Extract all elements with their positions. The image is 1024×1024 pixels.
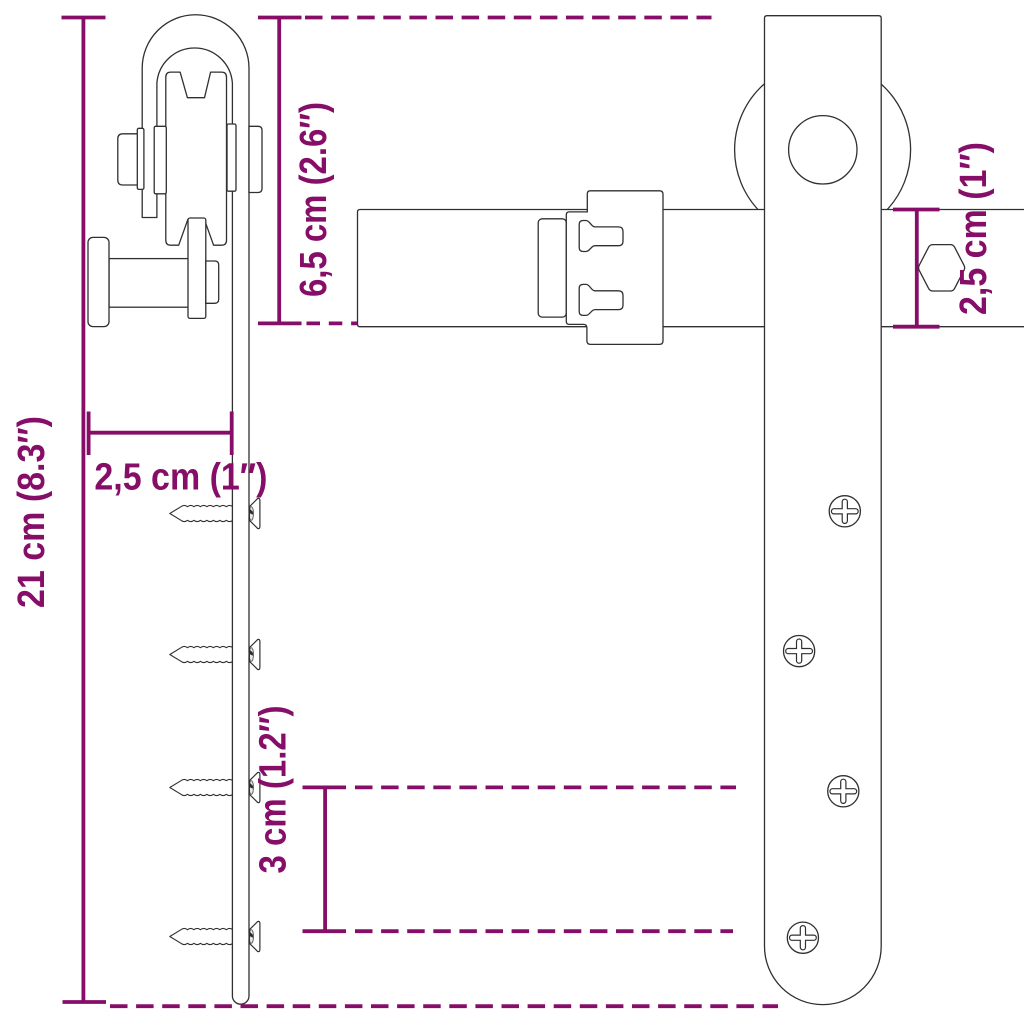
svg-text:2,5 cm (1″): 2,5 cm (1″) <box>953 142 995 315</box>
svg-text:6,5 cm (2.6″): 6,5 cm (2.6″) <box>293 102 335 297</box>
svg-text:2,5 cm (1″): 2,5 cm (1″) <box>94 457 267 499</box>
svg-text:3 cm (1.2″): 3 cm (1.2″) <box>253 706 295 874</box>
svg-text:21 cm (8.3″): 21 cm (8.3″) <box>11 416 53 608</box>
